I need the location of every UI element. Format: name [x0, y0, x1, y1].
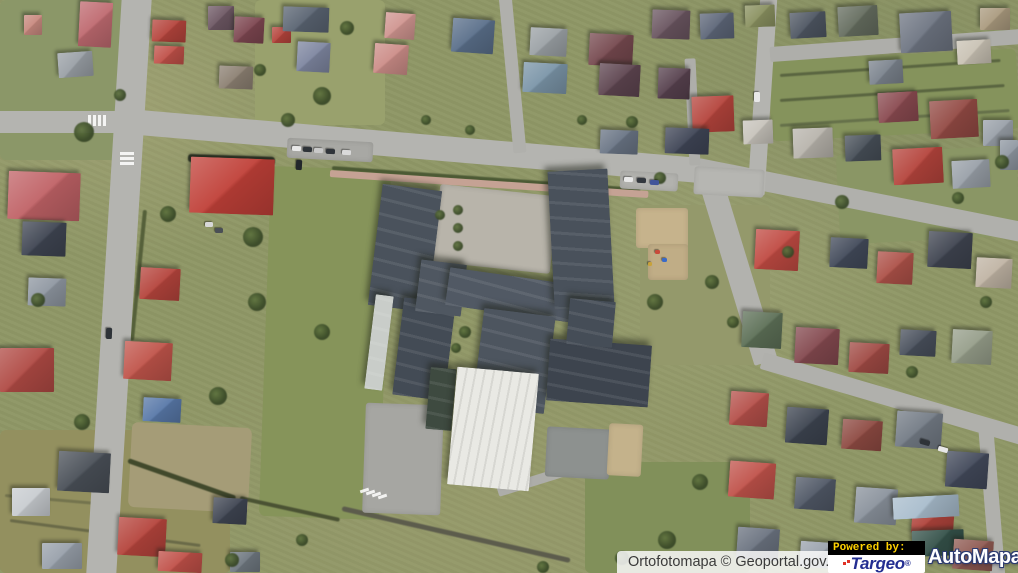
paved-area [545, 426, 612, 479]
attribution-bar: Ortofotomapa © Geoportal.gov.pl [617, 551, 852, 573]
school-building [447, 367, 539, 492]
paved-area [693, 166, 764, 198]
house-roof [208, 6, 234, 30]
house-roof [895, 410, 943, 449]
house-roof [899, 329, 936, 357]
school-building [547, 169, 614, 310]
house-roof [384, 12, 416, 40]
house-roof [24, 15, 42, 35]
car [938, 446, 949, 454]
hedge-row [341, 506, 570, 563]
house-roof [142, 397, 181, 423]
playground-equipment [648, 262, 652, 266]
house-roof [373, 43, 409, 75]
road-marking [93, 115, 96, 126]
house-roof [522, 62, 568, 94]
car [650, 180, 659, 185]
paved-area [636, 208, 688, 248]
road-marking [103, 115, 106, 126]
tree [281, 113, 295, 127]
tree [114, 89, 126, 101]
tree [577, 115, 587, 125]
house-roof [57, 451, 111, 494]
house-roof [296, 41, 331, 73]
house-roof [899, 11, 953, 54]
powered-by-block: Powered by: Targeo® [828, 541, 925, 573]
tree [537, 561, 549, 573]
house-roof [980, 8, 1010, 30]
house-roof [951, 329, 993, 365]
targeo-registered-mark: ® [905, 559, 911, 569]
map-viewport: Ortofotomapa © Geoportal.gov.pl Powered … [0, 0, 1018, 573]
house-roof [233, 16, 264, 44]
house-roof [21, 221, 66, 257]
targeo-wordmark: Targeo [851, 554, 905, 573]
automapa-wordmark: AutoMapa [928, 546, 1018, 568]
tree [995, 155, 1009, 169]
tree [453, 241, 463, 251]
tree [160, 206, 176, 222]
school-building [566, 298, 616, 348]
house-roof [451, 18, 495, 55]
tree [453, 205, 463, 215]
road-marking [120, 157, 134, 160]
car [342, 150, 351, 155]
tree [254, 64, 266, 76]
tree [313, 87, 331, 105]
tree [952, 192, 964, 204]
house-roof [12, 488, 50, 516]
road-segment [0, 111, 125, 133]
tree [340, 21, 354, 35]
house-roof [78, 1, 113, 48]
tree [296, 534, 308, 546]
attribution-text: Ortofotomapa © Geoportal.gov.pl [628, 554, 841, 570]
tree [243, 227, 263, 247]
house-roof [691, 95, 734, 132]
house-roof [7, 171, 81, 221]
house-roof [951, 159, 990, 189]
tree [727, 316, 739, 328]
playground-equipment [655, 250, 660, 254]
house-roof [212, 497, 247, 525]
house-roof [700, 12, 735, 39]
targeo-dots-icon [843, 559, 851, 569]
tree [705, 275, 719, 289]
tree [459, 326, 471, 338]
house-roof [283, 6, 330, 33]
house-roof [57, 51, 94, 78]
tree [692, 474, 708, 490]
playground-equipment [662, 258, 667, 262]
house-roof [745, 4, 776, 27]
house-roof [139, 267, 181, 301]
tree [421, 115, 431, 125]
tree [453, 223, 463, 233]
tree [980, 296, 992, 308]
road-marking [120, 152, 134, 155]
paved-area [607, 423, 644, 477]
tree [435, 210, 445, 220]
car [314, 148, 323, 153]
house-roof [877, 91, 919, 123]
powered-by-label: Powered by: [828, 541, 925, 555]
house-roof [785, 407, 829, 446]
tree [248, 293, 266, 311]
house-roof [841, 419, 883, 452]
car [326, 149, 335, 154]
house-roof [741, 311, 783, 349]
house-roof [588, 33, 634, 67]
house-roof [876, 251, 914, 285]
house-roof [728, 460, 776, 499]
house-roof [794, 477, 836, 512]
house-roof [794, 327, 840, 365]
tree [451, 343, 461, 353]
car [292, 146, 301, 151]
house-roof [42, 543, 82, 569]
house-roof [743, 119, 774, 144]
aerial-map-canvas[interactable] [0, 0, 1018, 573]
house-roof [854, 487, 898, 526]
house-roof [892, 494, 959, 519]
house-roof [792, 127, 833, 158]
house-roof [837, 5, 879, 37]
house-roof [848, 342, 890, 374]
tree [314, 324, 330, 340]
tree [465, 125, 475, 135]
car [754, 92, 760, 102]
paved-area [432, 184, 558, 274]
car [205, 222, 213, 227]
car [215, 228, 223, 233]
paved-area [648, 244, 688, 280]
house-roof [189, 157, 275, 216]
tree [906, 366, 918, 378]
house-roof [665, 127, 710, 155]
tree [74, 122, 94, 142]
house-roof [929, 99, 979, 139]
road-marking [98, 115, 101, 126]
tree [225, 553, 239, 567]
car [106, 328, 112, 339]
house-roof [789, 11, 826, 39]
house-roof [845, 134, 882, 161]
school-building [546, 339, 652, 408]
house-roof [927, 231, 973, 269]
house-roof [975, 257, 1013, 289]
house-roof [529, 27, 567, 57]
targeo-logo[interactable]: Targeo® [828, 555, 925, 573]
tree [74, 414, 90, 430]
tree [31, 293, 45, 307]
car [624, 177, 633, 182]
house-roof [657, 67, 690, 99]
house-roof [154, 45, 185, 64]
house-roof [829, 237, 869, 269]
road-marking [120, 162, 134, 165]
house-roof [123, 341, 173, 381]
house-roof [600, 129, 639, 154]
tree [658, 531, 676, 549]
house-roof [945, 451, 989, 490]
tree [209, 387, 227, 405]
house-roof [652, 9, 691, 39]
car [637, 178, 646, 183]
house-roof [956, 39, 991, 65]
tree [647, 294, 663, 310]
car [296, 160, 303, 170]
tree [782, 246, 794, 258]
house-roof [0, 348, 54, 392]
tree [626, 116, 638, 128]
house-roof [152, 19, 187, 42]
car [303, 147, 312, 152]
house-roof [158, 551, 203, 573]
house-roof [219, 65, 254, 89]
house-roof [892, 147, 944, 186]
house-roof [868, 59, 903, 85]
tree [835, 195, 849, 209]
automapa-logo[interactable]: AutoMapa® [928, 546, 1018, 569]
house-roof [729, 391, 769, 428]
house-roof [598, 63, 641, 97]
